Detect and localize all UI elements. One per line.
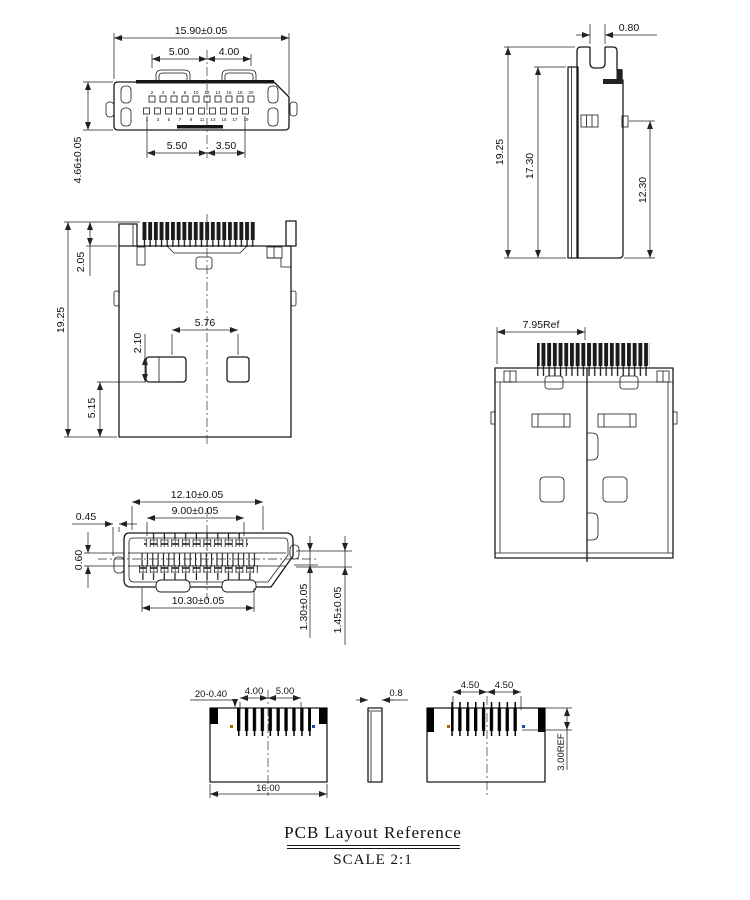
contact-comb: [537, 343, 650, 366]
dim-step2: 1.45±0.05: [332, 587, 344, 634]
pad-stripes: [235, 708, 311, 731]
dim-peg: 12.30: [637, 177, 649, 203]
dim-shell: 12.10±0.05: [171, 489, 224, 501]
top-view-dimensions: 15.90±0.05 5.00 4.00 5.50 3.50 4.66±0.05: [72, 25, 289, 183]
pad-marker-orange: [230, 725, 233, 728]
side-view: 0.80 19.25 17.30 12.30: [494, 22, 657, 258]
dim-height: 4.66±0.05: [72, 137, 84, 184]
dim-bottom-left: 5.50: [167, 140, 188, 152]
pin-row-bottom: 1 3 5 7 9 11 13 15 17 19: [144, 108, 249, 122]
pcb-mid-dimensions: 0.8: [356, 688, 408, 700]
dim-thickness: 0.8: [389, 688, 402, 699]
pcb-layout-right: 4.50 4.50 3.00REF: [427, 680, 572, 798]
pin-number: 3: [157, 117, 160, 122]
pin-number: 6: [173, 90, 176, 95]
pin-number: 4: [162, 90, 165, 95]
contact-tails: [537, 366, 650, 376]
shell-front-edge: [177, 125, 223, 129]
front-view: 2.05 19.25 5.76 2.10 5.15: [55, 214, 296, 444]
drawing-page: 2 4 6 8 10 12 14 16 18 20 1 3 5 7 9 11 1…: [0, 0, 750, 900]
dim-top-left: 5.00: [169, 46, 190, 58]
pin-number: 16: [227, 90, 232, 95]
bottom-cutout: [222, 580, 256, 592]
pin-number: 10: [194, 90, 199, 95]
pin-number: 9: [190, 117, 193, 122]
technical-drawing: 2 4 6 8 10 12 14 16 18 20 1 3 5 7 9 11 1…: [0, 0, 750, 900]
pad-stripes: [451, 708, 521, 731]
pad-ticks: [451, 702, 521, 708]
dim-pad-height: 2.10: [132, 333, 144, 354]
contact-tails: [142, 240, 256, 247]
pad-marker-orange: [447, 725, 450, 728]
footer: PCB Layout Reference SCALE 2:1: [284, 823, 462, 868]
solder-pad: [603, 477, 627, 502]
dim-right: 4.50: [495, 680, 514, 691]
dim-bottom-right: 3.50: [216, 140, 237, 152]
front-view-dimensions: 2.05 19.25 5.76 2.10 5.15: [55, 222, 238, 437]
face-view: 12.10±0.05 9.00±0.05 0.45 0.60 10.30±0.0…: [72, 489, 352, 645]
dim-overall-width: 15.90±0.05: [175, 25, 228, 37]
pad-tails: [451, 731, 521, 736]
drawing-title: PCB Layout Reference: [284, 823, 462, 842]
dim-pins-bottom: 10.30±0.05: [172, 595, 225, 607]
contact-tails-top: [144, 533, 248, 539]
contact-comb: [142, 222, 256, 240]
solder-pad-left: [146, 357, 186, 382]
pin-number: 17: [233, 117, 238, 122]
tongue-contacts: [140, 553, 258, 566]
pin-number: 5: [168, 117, 171, 122]
dim-lip: 0.45: [76, 511, 97, 523]
side-window: [581, 115, 598, 127]
dim-slot: 0.80: [619, 22, 640, 34]
bottom-cutout: [156, 580, 190, 592]
pin-number: 13: [211, 117, 216, 122]
pad-marker-blue: [312, 725, 315, 728]
dim-overall: 19.25: [494, 139, 506, 165]
pin-number: 7: [179, 117, 182, 122]
pin-number: 14: [216, 90, 221, 95]
pin-number: 18: [238, 90, 243, 95]
pcb-layout-middle: 0.8: [356, 688, 408, 782]
latch-arch-right: [222, 70, 256, 80]
pin-number: 8: [184, 90, 187, 95]
dim-left: 4.50: [461, 680, 480, 691]
pin-number: 15: [222, 117, 227, 122]
dim-left: 4.00: [245, 686, 264, 697]
dim-overall: 19.25: [55, 307, 67, 333]
dim-pads: 20-0.40: [195, 689, 227, 700]
dim-tongue: 0.60: [73, 550, 85, 571]
bottom-view: 7.95Ref: [491, 319, 677, 562]
dim-step1: 1.30±0.05: [298, 584, 310, 631]
dim-ref: 7.95Ref: [523, 319, 560, 331]
dim-tail: 2.05: [75, 252, 87, 273]
dim-width: 16.00: [256, 783, 280, 794]
shell-rear-edge: [136, 80, 274, 84]
dim-depth: 3.00REF: [556, 733, 567, 771]
latch-ledge: [603, 79, 623, 84]
contact-row-bottom: [139, 565, 258, 573]
pin-number: 20: [249, 90, 254, 95]
pin-number: 19: [244, 117, 249, 122]
contact-row-top: [144, 539, 248, 547]
pcb-layout-left: 4.00 5.00 20-0.40 16.00: [190, 686, 327, 798]
dim-body: 17.30: [524, 153, 536, 179]
solder-pad-right: [227, 357, 249, 382]
dim-pad-bottom: 5.15: [86, 398, 98, 419]
pad-tails: [235, 731, 311, 736]
pad-marker-blue: [522, 725, 525, 728]
solder-pad: [540, 477, 564, 502]
pin-row-top: 2 4 6 8 10 12 14 16 18 20: [149, 90, 254, 102]
dim-top-right: 4.00: [219, 46, 240, 58]
side-view-dimensions: 0.80 19.25 17.30 12.30: [494, 22, 657, 258]
dim-pad-pitch: 5.76: [195, 317, 216, 329]
pin-number: 2: [151, 90, 154, 95]
dim-pins-top: 9.00±0.05: [172, 505, 219, 517]
top-view: 2 4 6 8 10 12 14 16 18 20 1 3 5 7 9 11 1…: [72, 25, 297, 183]
dim-right: 5.00: [276, 686, 295, 697]
drawing-scale: SCALE 2:1: [333, 852, 412, 868]
latch-window: [196, 257, 212, 269]
latch-arch-left: [156, 70, 190, 80]
pin-number: 12: [205, 90, 210, 95]
pin-number: 11: [200, 117, 205, 122]
contact-tails-bottom: [139, 573, 258, 580]
